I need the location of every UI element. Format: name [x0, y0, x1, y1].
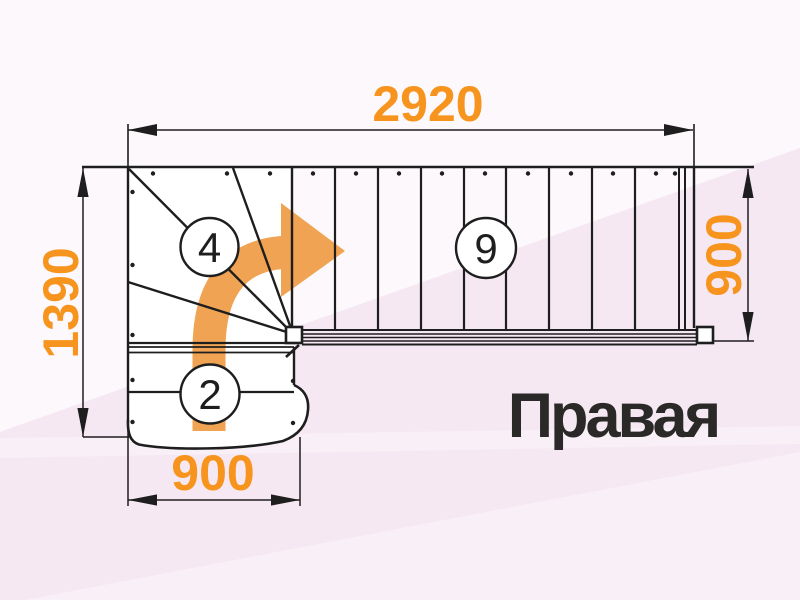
dimension-right-value: 900 — [696, 213, 752, 296]
newel-post-left — [286, 327, 302, 343]
orientation-label: Правая — [508, 381, 719, 451]
stair-plan-canvas: 4 9 2 2920 1390 900 900 Правая — [0, 0, 800, 600]
winder-step-count: 4 — [198, 224, 221, 271]
newel-post-right — [697, 327, 713, 343]
dimension-bottom-value: 900 — [171, 445, 254, 501]
straight-step-count: 9 — [474, 225, 497, 272]
dimension-left-value: 1390 — [33, 247, 89, 358]
lower-step-count: 2 — [198, 371, 221, 418]
stair-plan-diagram: 4 9 2 2920 1390 900 900 Правая — [0, 0, 800, 600]
dimension-top-value: 2920 — [372, 76, 483, 132]
